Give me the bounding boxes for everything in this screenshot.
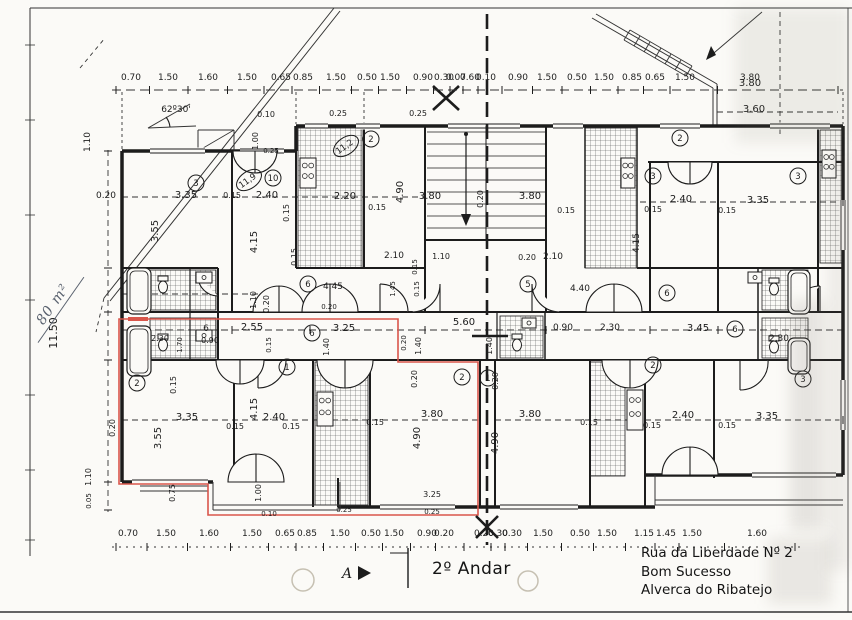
sink <box>748 272 762 283</box>
dim-label: 1.40 <box>485 337 494 355</box>
room-number: 3 <box>193 179 198 189</box>
dim-label: 1.50 <box>597 529 617 539</box>
dim-label: 1.10 <box>84 468 93 486</box>
door-swing <box>668 162 712 184</box>
dim-label: 0.10 <box>261 510 277 518</box>
room-number: 3 <box>795 172 800 182</box>
dim-label: 4.90 <box>412 427 423 449</box>
room-number: 1 <box>485 374 490 384</box>
dim-label: 0.15 <box>718 206 736 215</box>
toilet-tank <box>158 276 168 281</box>
dim-label: 3.25 <box>333 323 355 334</box>
room-number: 6 <box>664 289 669 299</box>
dim-label: 2.20 <box>334 191 356 202</box>
arrowhead <box>706 46 716 60</box>
highlight-accent <box>128 317 148 321</box>
dim-label: 1.40 <box>322 338 331 356</box>
kitchen-counter <box>627 390 643 430</box>
dim-label: 0.20 <box>434 529 454 539</box>
page: { "annotations": { "floor_label": "2º An… <box>0 0 852 620</box>
dim-label: 3.45 <box>687 323 709 334</box>
dim-label: 0.90 <box>413 73 433 83</box>
dim-label: 0.20 <box>262 295 271 313</box>
dim-label: 0.20 <box>400 335 408 351</box>
kitchen-counter <box>300 158 316 188</box>
dim-label: 0.65 <box>271 73 291 83</box>
kitchen-counter <box>621 158 635 188</box>
plan-geometry: 0.701.501.601.500.650.851.500.501.500.90… <box>0 8 852 612</box>
kitchen-counter <box>317 392 333 426</box>
dim-label: 1.50 <box>537 73 557 83</box>
dim-label: 0.15 <box>366 418 384 427</box>
dim-label: 0.15 <box>557 206 575 215</box>
dim-label: 1.50 <box>330 529 350 539</box>
roof-hatch-line <box>708 12 762 58</box>
dim-label: 3.80 <box>419 191 441 202</box>
dim-label: 0.20 <box>108 419 117 437</box>
dim-label: 3.60 <box>743 104 765 115</box>
dim-label: 4.90 <box>395 181 406 203</box>
dim-label: 0.70 <box>118 529 138 539</box>
room-number: 10 <box>268 174 279 184</box>
dim-label: 1.60 <box>747 529 767 539</box>
dim-label: 2.40 <box>256 190 278 201</box>
dim-label: 0.50 <box>567 73 587 83</box>
dim-label: 3.35 <box>175 190 197 201</box>
address-line-street: Rua da Liberdade Nº 2 <box>641 544 793 563</box>
dim-label: 0.05 <box>85 493 93 509</box>
dim-label: 1.15 <box>634 529 654 539</box>
door-swing <box>662 447 718 475</box>
dim-label: 2.40 <box>672 410 694 421</box>
dim-label: 0.15 <box>223 191 241 200</box>
arrowhead <box>461 214 471 226</box>
dim-label: 1.10 <box>249 291 258 309</box>
dim-label: 0.15 <box>413 281 421 297</box>
dim-label: 0.25 <box>263 147 279 155</box>
dim-label: 2.40 <box>670 194 692 205</box>
room-area: 11,9 <box>237 172 258 191</box>
door-swing <box>586 284 642 312</box>
room-number: 2 <box>650 361 655 371</box>
dim-label: 1.10 <box>432 252 450 261</box>
dim-label: 0.65 <box>275 529 295 539</box>
dim-label: 0.20 <box>321 303 337 311</box>
dim-label: 1.50 <box>380 73 400 83</box>
dim-label: 0.15 <box>718 421 736 430</box>
room-number: 5 <box>525 280 530 290</box>
dim-label: 5.60 <box>453 317 475 328</box>
dim-label: 4.45 <box>323 282 343 292</box>
dim-label: 1.50 <box>682 529 702 539</box>
construction-line <box>96 298 104 332</box>
dim-label: 3.80 <box>739 78 761 89</box>
dim-label: 1.50 <box>675 73 695 83</box>
dim-label: 2.30 <box>151 334 169 343</box>
floor-plan-sheet: 0.701.501.601.500.650.851.500.501.500.90… <box>0 0 852 620</box>
dim-label: 1.45 <box>656 529 676 539</box>
dim-label: 1.60 <box>198 73 218 83</box>
toilet <box>513 339 522 351</box>
dim-label: 2.30 <box>600 323 620 333</box>
toilet-tank <box>769 278 779 283</box>
dim-label: 0.25 <box>409 109 427 118</box>
dim-label: 1.50 <box>158 73 178 83</box>
dim-label: 2.10 <box>543 252 563 262</box>
faint-stamp <box>292 569 314 591</box>
dim-label: 0.90 <box>201 336 219 345</box>
dim-label: 1.45 <box>389 281 397 297</box>
dim-label: 1.00 <box>254 484 263 502</box>
room-number: 2 <box>677 134 682 144</box>
dim-label: 0.25 <box>329 109 347 118</box>
dim-label: 0.10 <box>257 110 275 119</box>
dim-label: 0.15 <box>290 248 299 266</box>
dim-label: 0.20 <box>476 190 485 208</box>
dim-label: 1.00 <box>251 132 260 150</box>
dim-label: 0.65 <box>645 73 665 83</box>
dim-label: 0.20 <box>410 370 419 388</box>
dim-label: 6 <box>203 324 209 334</box>
dim-label: 0.15 <box>226 422 244 431</box>
dim-label: 3.35 <box>176 412 198 423</box>
dim-label: 1.50 <box>594 73 614 83</box>
dim-label: 0.90 <box>553 323 573 333</box>
dim-label: 1.50 <box>326 73 346 83</box>
floor-title: 2º Andar <box>432 559 511 579</box>
room-number: 2 <box>134 379 139 389</box>
dim-label: 0.20 <box>96 191 116 201</box>
construction-line <box>80 38 105 68</box>
dim-label: 0.50 <box>570 529 590 539</box>
dim-label: 0.15 <box>580 418 598 427</box>
dim-label: 4.15 <box>632 233 642 253</box>
dim-label: 3.35 <box>747 195 769 206</box>
dim-label: 0.25 <box>336 506 352 514</box>
dim-label: 0.15 <box>169 376 178 394</box>
dim-label: 0.70 <box>121 73 141 83</box>
door-swing <box>216 360 264 384</box>
room-number: 6 <box>732 325 737 335</box>
toilet-tank <box>512 334 522 339</box>
dim-label: 1.50 <box>237 73 257 83</box>
dim-label: 0.50 <box>361 529 381 539</box>
dim-label: 4.15 <box>249 398 260 420</box>
door-swing <box>166 117 170 127</box>
dim-label: 0.85 <box>293 73 313 83</box>
room-number: 2 <box>459 373 464 383</box>
bathtub <box>127 326 151 376</box>
dim-label: 0.50 <box>357 73 377 83</box>
floor-plan-canvas: 0.701.501.601.500.650.851.500.501.500.90… <box>0 0 852 620</box>
dim-label: 0.25 <box>424 508 440 516</box>
dim-label: 0.15 <box>282 204 291 222</box>
dim-label: 0.75 <box>168 484 177 502</box>
dim-label: 4.90 <box>490 432 501 454</box>
dim-label: 0.15 <box>644 205 662 214</box>
dim-label: 0.20 <box>518 253 536 262</box>
dim-label: 3.25 <box>423 490 441 499</box>
dim-label: 1.50 <box>156 529 176 539</box>
kitchen-counter <box>822 150 836 178</box>
dim-label: 1.50 <box>242 529 262 539</box>
dim-label: 3.80 <box>519 409 541 420</box>
dim-label: 1.50 <box>533 529 553 539</box>
room-number: 2 <box>368 135 373 145</box>
dim-label: 3.80 <box>421 409 443 420</box>
dim-label: 1.50 <box>384 529 404 539</box>
dim-label: 0.85 <box>622 73 642 83</box>
dim-label: 4.40 <box>570 284 590 294</box>
dim-label: 1.40 <box>414 337 423 355</box>
toilet <box>770 283 779 295</box>
dim-label: 0.15 <box>643 421 661 430</box>
dim-label: 0.30 <box>502 529 522 539</box>
dim-label: 1.60 <box>199 529 219 539</box>
dim-label: 0.15 <box>282 422 300 431</box>
dim-label: 2.10 <box>384 251 404 261</box>
room-number: 3 <box>650 172 655 182</box>
stair-arrow-start <box>464 132 468 136</box>
sink <box>522 318 536 328</box>
dim-label: 1.70 <box>176 337 184 353</box>
dim-label: 4.15 <box>249 231 260 253</box>
dim-label: 3.80 <box>519 191 541 202</box>
door-swing <box>253 286 305 312</box>
address-line-locality: Bom Sucesso <box>641 563 793 582</box>
dim-label: 2.30 <box>769 334 789 344</box>
thin-line <box>148 126 196 128</box>
dim-label: 3.55 <box>150 220 161 242</box>
dim-label: 1.10 <box>83 132 93 152</box>
dim-label: 3.35 <box>756 411 778 422</box>
room-number: 3 <box>800 375 805 385</box>
dim-label: 0.10 <box>476 73 496 83</box>
dim-label: 62º30' <box>161 105 191 115</box>
dim-label: 3.55 <box>153 427 164 449</box>
address-block: Rua da Liberdade Nº 2 Bom Sucesso Alverc… <box>641 544 793 600</box>
tiled-floor <box>585 128 637 268</box>
faint-stamp <box>518 571 538 591</box>
room-number: 6 <box>309 329 314 339</box>
dim-label: 0.85 <box>297 529 317 539</box>
sink <box>196 272 212 283</box>
arrowhead <box>358 566 371 580</box>
dim-label: 0.15 <box>368 203 386 212</box>
toilet <box>159 281 168 293</box>
dim-label: 2.55 <box>241 322 263 333</box>
dim-label: 0.15 <box>411 259 419 275</box>
room-number: 6 <box>305 280 310 290</box>
address-line-town: Alverca do Ribatejo <box>641 581 793 600</box>
door-swing <box>228 454 284 482</box>
dim-label: 0.90 <box>508 73 528 83</box>
section-marker-letter: A <box>340 566 352 582</box>
door-swing <box>740 360 768 390</box>
dim-label: 0.15 <box>265 337 273 353</box>
bathtub <box>127 268 151 314</box>
room-number: 1 <box>284 363 289 373</box>
